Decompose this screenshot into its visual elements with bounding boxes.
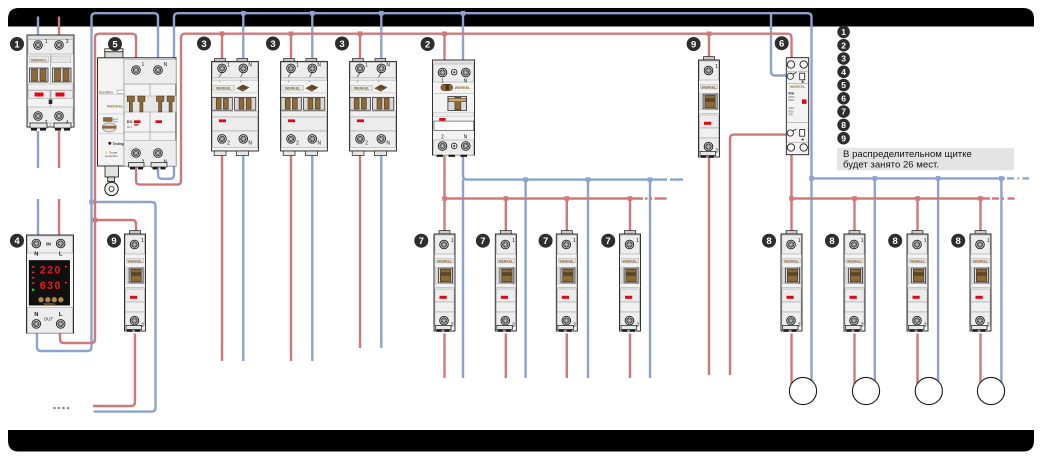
svg-text:будет занято 26 мест.: будет занято 26 мест. [843, 160, 939, 171]
svg-text:3: 3 [201, 39, 206, 50]
svg-text:3: 3 [841, 54, 846, 64]
svg-text:7: 7 [606, 236, 611, 247]
svg-text:5: 5 [112, 39, 118, 50]
svg-text:4: 4 [841, 67, 846, 77]
svg-text:6: 6 [841, 93, 846, 103]
svg-text:9: 9 [841, 133, 846, 143]
svg-text:WERKEL: WERKEL [216, 87, 232, 91]
svg-text:Operating: Operating [99, 91, 113, 95]
svg-text:3: 3 [270, 39, 275, 50]
svg-text:N: N [34, 251, 38, 257]
svg-text:DO: DO [127, 120, 133, 124]
svg-text:630: 630 [40, 280, 62, 292]
svg-text:N: N [464, 79, 468, 85]
svg-text:В распределительном щитке: В распределительном щитке [843, 149, 972, 160]
svg-text:WERKEL: WERKEL [31, 58, 48, 62]
svg-text:7: 7 [480, 236, 485, 247]
svg-text:1: 1 [227, 62, 230, 68]
svg-text:220: 220 [40, 264, 62, 276]
svg-text:Recl.: Recl. [113, 120, 119, 123]
svg-text:7: 7 [419, 236, 424, 247]
svg-text:1: 1 [841, 27, 846, 37]
svg-text:1E-1: 1E-1 [127, 126, 133, 129]
svg-text:40A: 40A [788, 92, 795, 96]
svg-text:1: 1 [14, 39, 20, 50]
svg-text:2: 2 [841, 40, 846, 50]
svg-text:50Hz: 50Hz [788, 98, 795, 102]
svg-text:N: N [464, 134, 468, 140]
svg-text:WERKEL: WERKEL [455, 86, 471, 90]
svg-text:N: N [34, 312, 38, 318]
svg-text:2: 2 [441, 134, 444, 140]
svg-text:T40: T40 [788, 113, 793, 117]
svg-text:8: 8 [893, 236, 898, 247]
svg-text:7: 7 [841, 107, 846, 117]
svg-text:1: 1 [45, 39, 48, 45]
svg-text:Testing: Testing [113, 142, 124, 146]
svg-text:8: 8 [829, 236, 834, 247]
svg-text:8: 8 [766, 236, 771, 247]
svg-text:N: N [248, 140, 252, 146]
svg-text:8: 8 [956, 236, 961, 247]
svg-text:protection: protection [105, 154, 119, 158]
svg-text:6: 6 [779, 39, 784, 50]
svg-text:7: 7 [543, 236, 548, 247]
svg-text:4: 4 [14, 236, 20, 247]
svg-text:L: L [59, 312, 63, 318]
svg-text:1: 1 [142, 62, 145, 68]
svg-text:L: L [59, 251, 63, 257]
svg-text:2: 2 [425, 39, 430, 50]
svg-text:8: 8 [841, 120, 846, 130]
svg-text:1: 1 [441, 79, 444, 85]
svg-text:IN: IN [46, 242, 51, 248]
svg-text:9: 9 [691, 39, 696, 50]
svg-text:OUT: OUT [44, 316, 54, 321]
svg-text:WERKEL: WERKEL [790, 85, 806, 89]
svg-text:5: 5 [841, 80, 846, 90]
svg-text:2: 2 [227, 140, 230, 146]
svg-text:3: 3 [339, 39, 344, 50]
svg-text:9: 9 [111, 236, 116, 247]
svg-text:N: N [164, 62, 168, 68]
svg-text:3: 3 [66, 39, 69, 45]
svg-text:WERKEL: WERKEL [107, 103, 124, 108]
svg-text:WERKEL: WERKEL [43, 302, 55, 306]
svg-text:N: N [248, 62, 252, 68]
